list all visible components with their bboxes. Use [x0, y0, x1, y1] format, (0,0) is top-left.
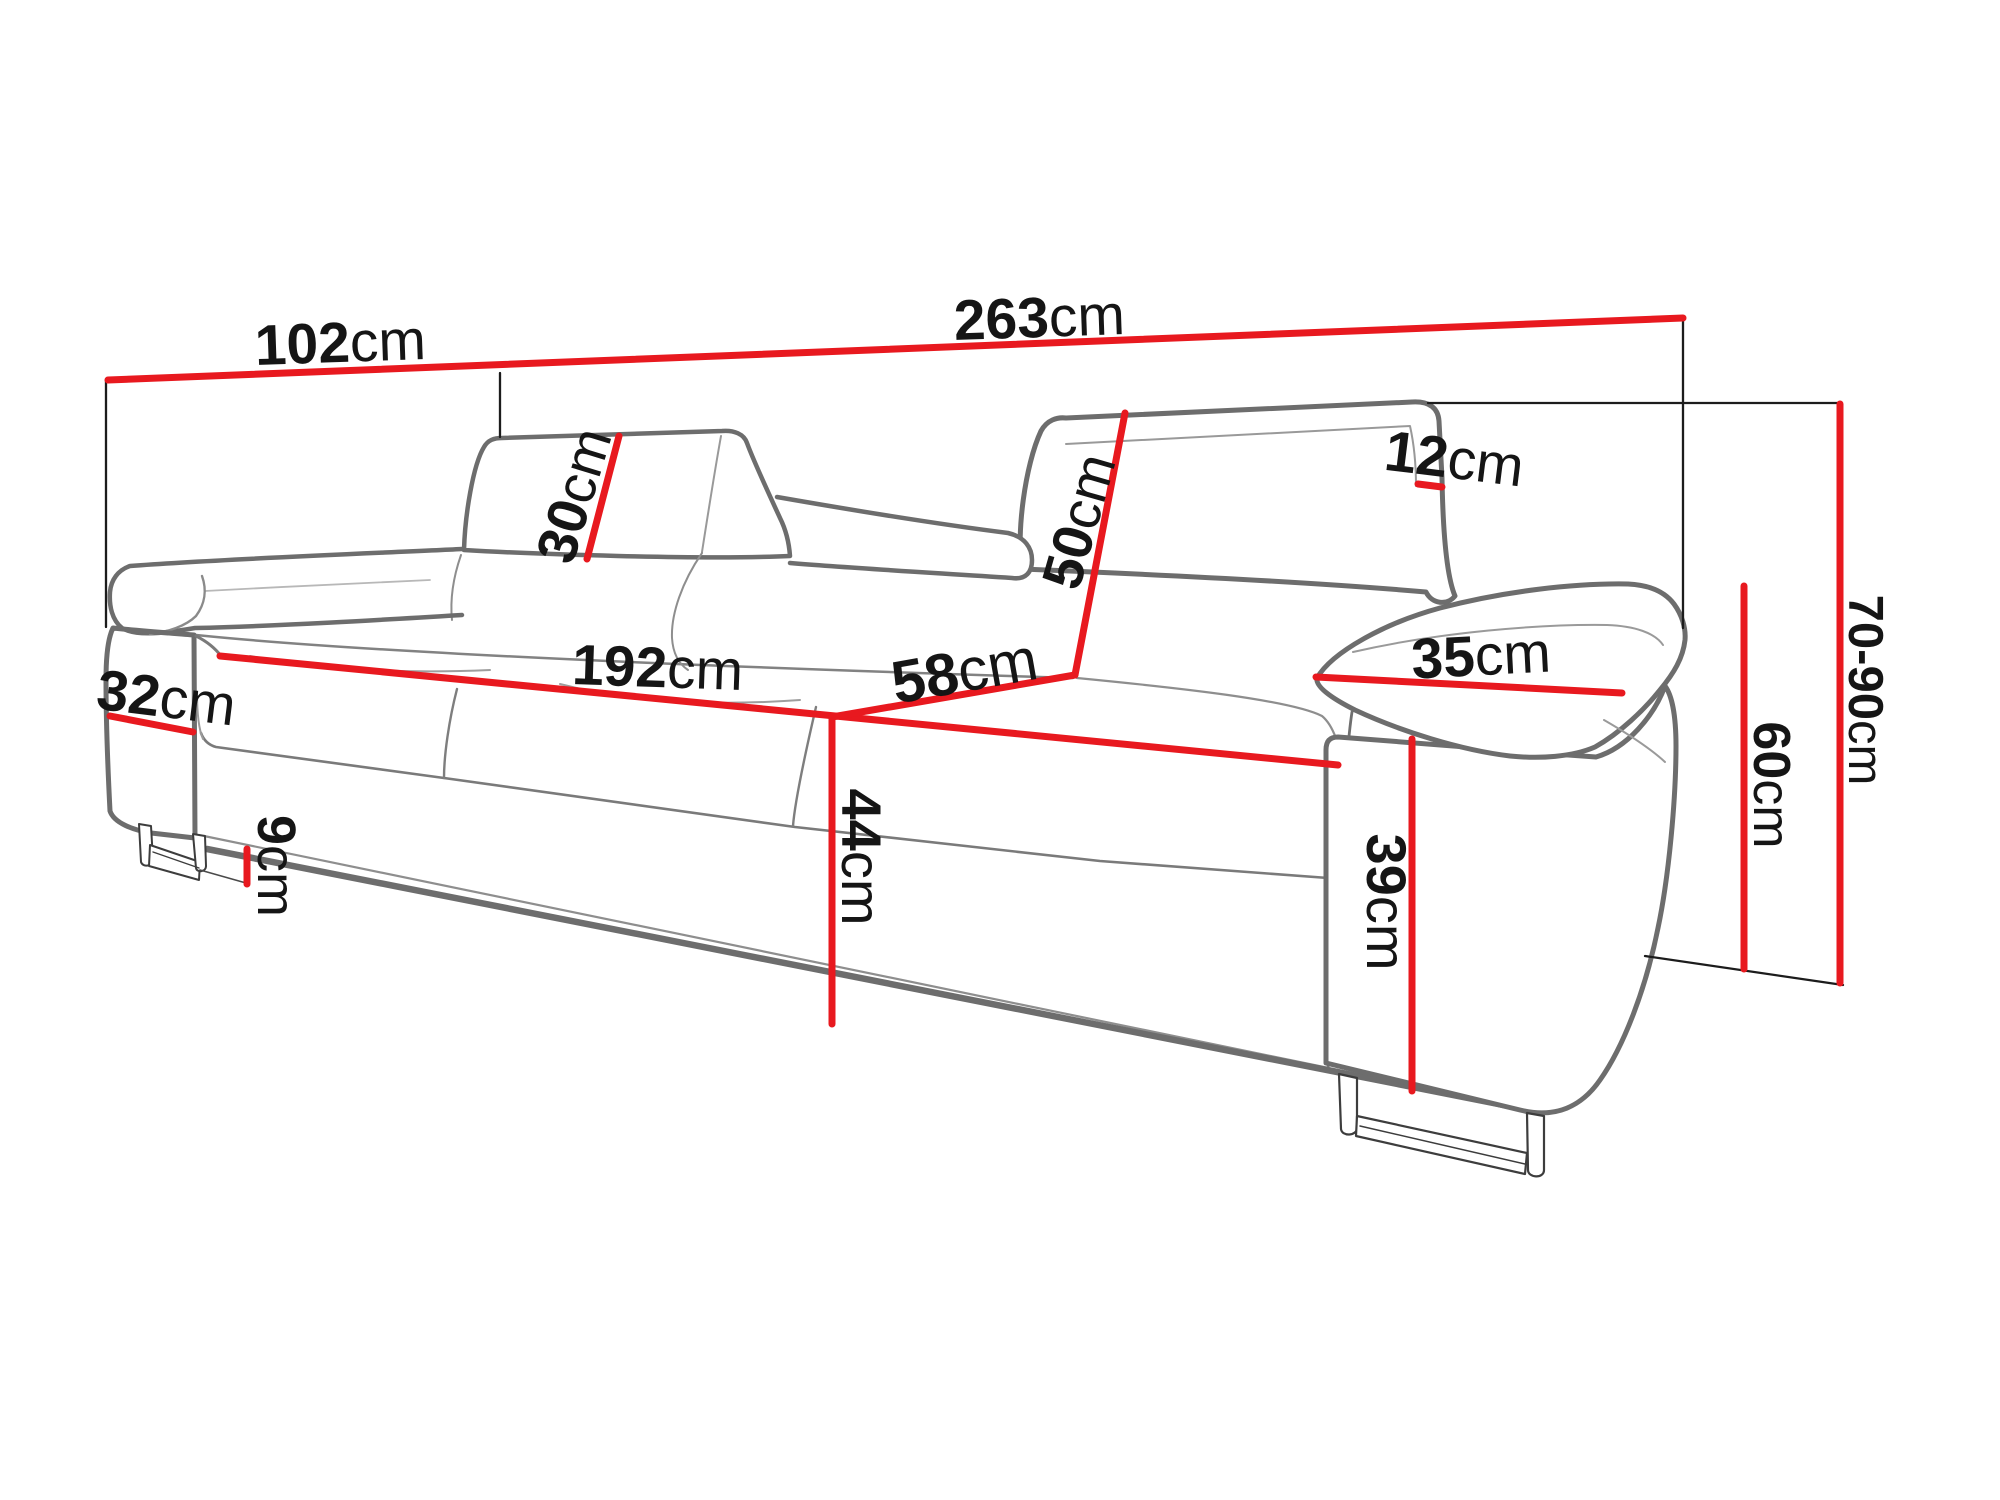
svg-text:44cm: 44cm	[830, 789, 893, 926]
svg-text:60cm: 60cm	[1742, 721, 1800, 848]
svg-text:9cm: 9cm	[246, 815, 306, 917]
svg-text:263cm: 263cm	[953, 283, 1126, 353]
svg-text:192cm: 192cm	[571, 633, 744, 703]
svg-text:35cm: 35cm	[1410, 620, 1553, 691]
svg-text:102cm: 102cm	[254, 308, 427, 378]
svg-text:70-90cm: 70-90cm	[1838, 595, 1892, 786]
svg-text:39cm: 39cm	[1355, 834, 1418, 971]
